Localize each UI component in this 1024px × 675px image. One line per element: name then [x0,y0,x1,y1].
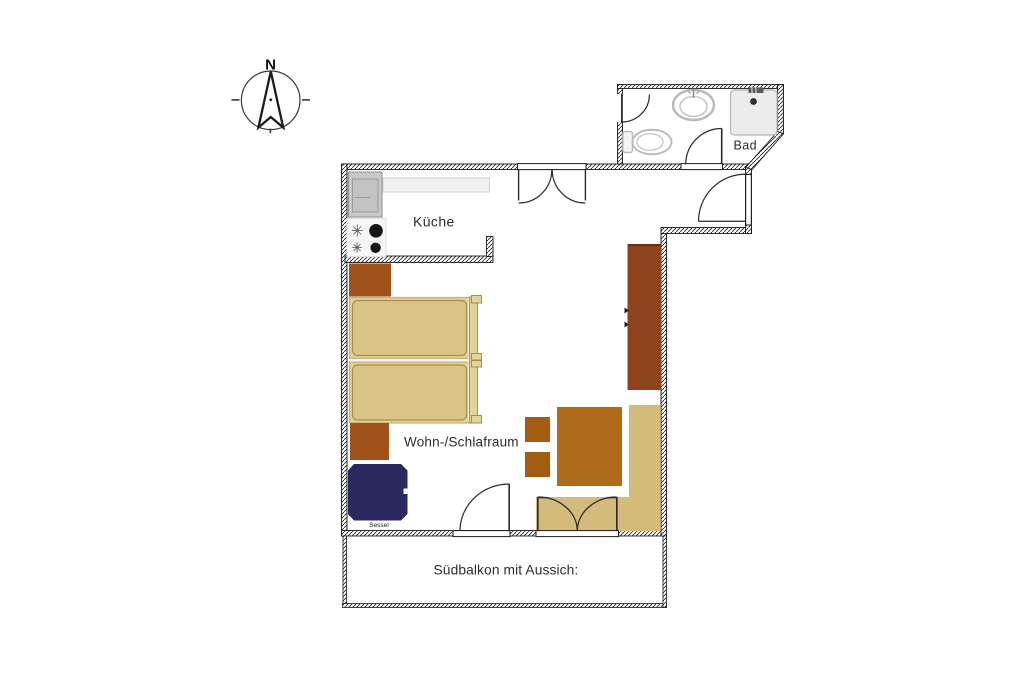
svg-text:Wohn-/Schlafraum: Wohn-/Schlafraum [404,435,519,450]
svg-text:Küche: Küche [413,214,455,230]
svg-text:Sessel: Sessel [369,522,389,529]
svg-text:Südbalkon mit Aussich:: Südbalkon mit Aussich: [434,563,579,578]
svg-text:N: N [265,57,276,74]
svg-text:Bad: Bad [734,139,757,153]
